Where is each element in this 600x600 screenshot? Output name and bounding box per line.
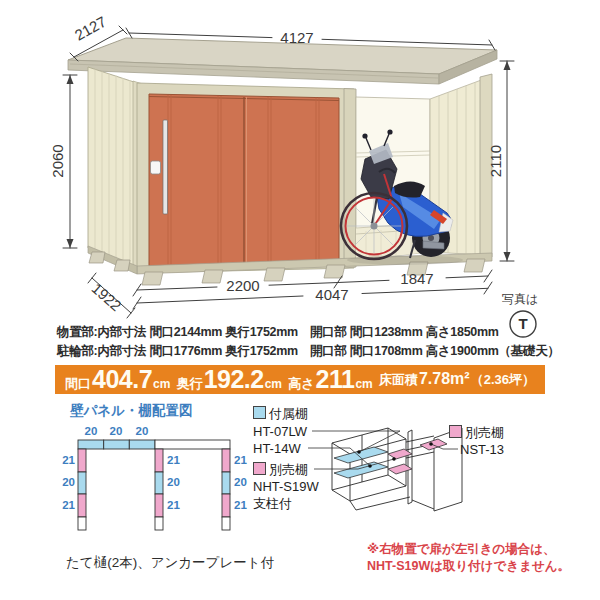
product-diagram-page: 2127 4127 2060 2110 2200 1847 4047 1922 … [0, 0, 600, 600]
equipment-note: たて樋(2本)、アンカープレート付 [66, 554, 274, 572]
plan-middle-label: 21 [167, 499, 180, 511]
banner-floor-area: 床面積 7.78m² （2.36坪） [379, 370, 535, 389]
banner-height: 高さ 211 cm [288, 365, 373, 394]
plan-top-label: 20 [85, 425, 98, 437]
dim-width-top: 4127 [280, 29, 313, 46]
plan-left-label: 21 [62, 499, 75, 511]
spec-text: 物置部:内部寸法 間口2144mm 奥行1752mm 開口部 間口1238mm … [57, 323, 560, 361]
dim-height-left: 2060 [49, 144, 66, 177]
door-handle [163, 120, 168, 214]
dim-bay-front: 1847 [400, 270, 433, 287]
shed-illustration: 2127 4127 2060 2110 2200 1847 4047 1922 … [0, 0, 600, 345]
photo-note-label: 写真は [502, 292, 538, 306]
legend-attached-model-2: HT-14W [253, 441, 301, 456]
plan-middle-label: 20 [167, 476, 180, 488]
legend-optional-shelf-2: 別売棚 [449, 425, 504, 440]
dim-height-right: 2110 [487, 145, 504, 177]
door-lock [151, 161, 161, 174]
spec-line-storage: 物置部:内部寸法 間口2144mm 奥行1752mm 開口部 間口1238mm … [57, 323, 560, 342]
optional-shelf-swatch-icon [449, 425, 462, 438]
panel-layout-diagram: 20 20 20 21 20 21 21 [62, 420, 262, 538]
shed-left-wall [88, 67, 141, 273]
plan-top-label: 20 [110, 425, 123, 437]
panel-layout-title: 壁パネル・棚配置図 [70, 402, 192, 420]
plan-right-label: 20 [234, 476, 247, 488]
dim-depth-bottom: 1922 [88, 279, 124, 314]
size-banner: 間口 404.7 cm 奥行 192.2 cm 高さ 211 cm 床面積 7.… [55, 365, 545, 394]
legend-attached-shelf: 付属棚 [253, 406, 308, 421]
plan-left-label: 20 [62, 476, 75, 488]
legend-optional-model-2: NST-13 [460, 442, 504, 457]
plan-left-label: 21 [62, 454, 75, 466]
spec-line-bicycle: 駐輪部:内部寸法 間口1776mm 奥行1752mm 開口部 間口1708mm … [57, 342, 560, 361]
attached-shelf-mid [334, 462, 388, 478]
optional-shelf-swatch-icon [253, 462, 266, 475]
caution-note: ※右物置で扉が左引きの場合は、 NHT-S19Wは取り付けできません。 [367, 541, 570, 575]
banner-depth: 奥行 192.2 cm [177, 365, 282, 394]
attached-shelf-swatch-icon [253, 406, 266, 419]
dim-depth-top: 2127 [72, 13, 109, 44]
caution-line-1: ※右物置で扉が左引きの場合は、 [367, 541, 570, 558]
plan-middle-label: 21 [167, 454, 180, 466]
caution-line-2: NHT-S19Wは取り付けできません。 [367, 558, 570, 575]
plan-top-label: 20 [136, 425, 149, 437]
plan-right-label: 21 [234, 499, 247, 511]
banner-width: 間口 404.7 cm [65, 365, 170, 394]
legend-optional-note-1: 支柱付 [253, 496, 292, 511]
dim-storage-front: 2200 [226, 277, 259, 294]
legend-optional-model-1: NHT-S19W [253, 479, 319, 494]
optional-shelf-nst13 [420, 439, 447, 450]
plan-right-label: 21 [234, 454, 247, 466]
legend-attached-model-1: HT-07LW [253, 424, 307, 439]
shed-front-storage [137, 83, 354, 273]
dim-total-front: 4047 [315, 286, 348, 303]
legend-optional-shelf-1: 別売棚 [253, 462, 308, 477]
